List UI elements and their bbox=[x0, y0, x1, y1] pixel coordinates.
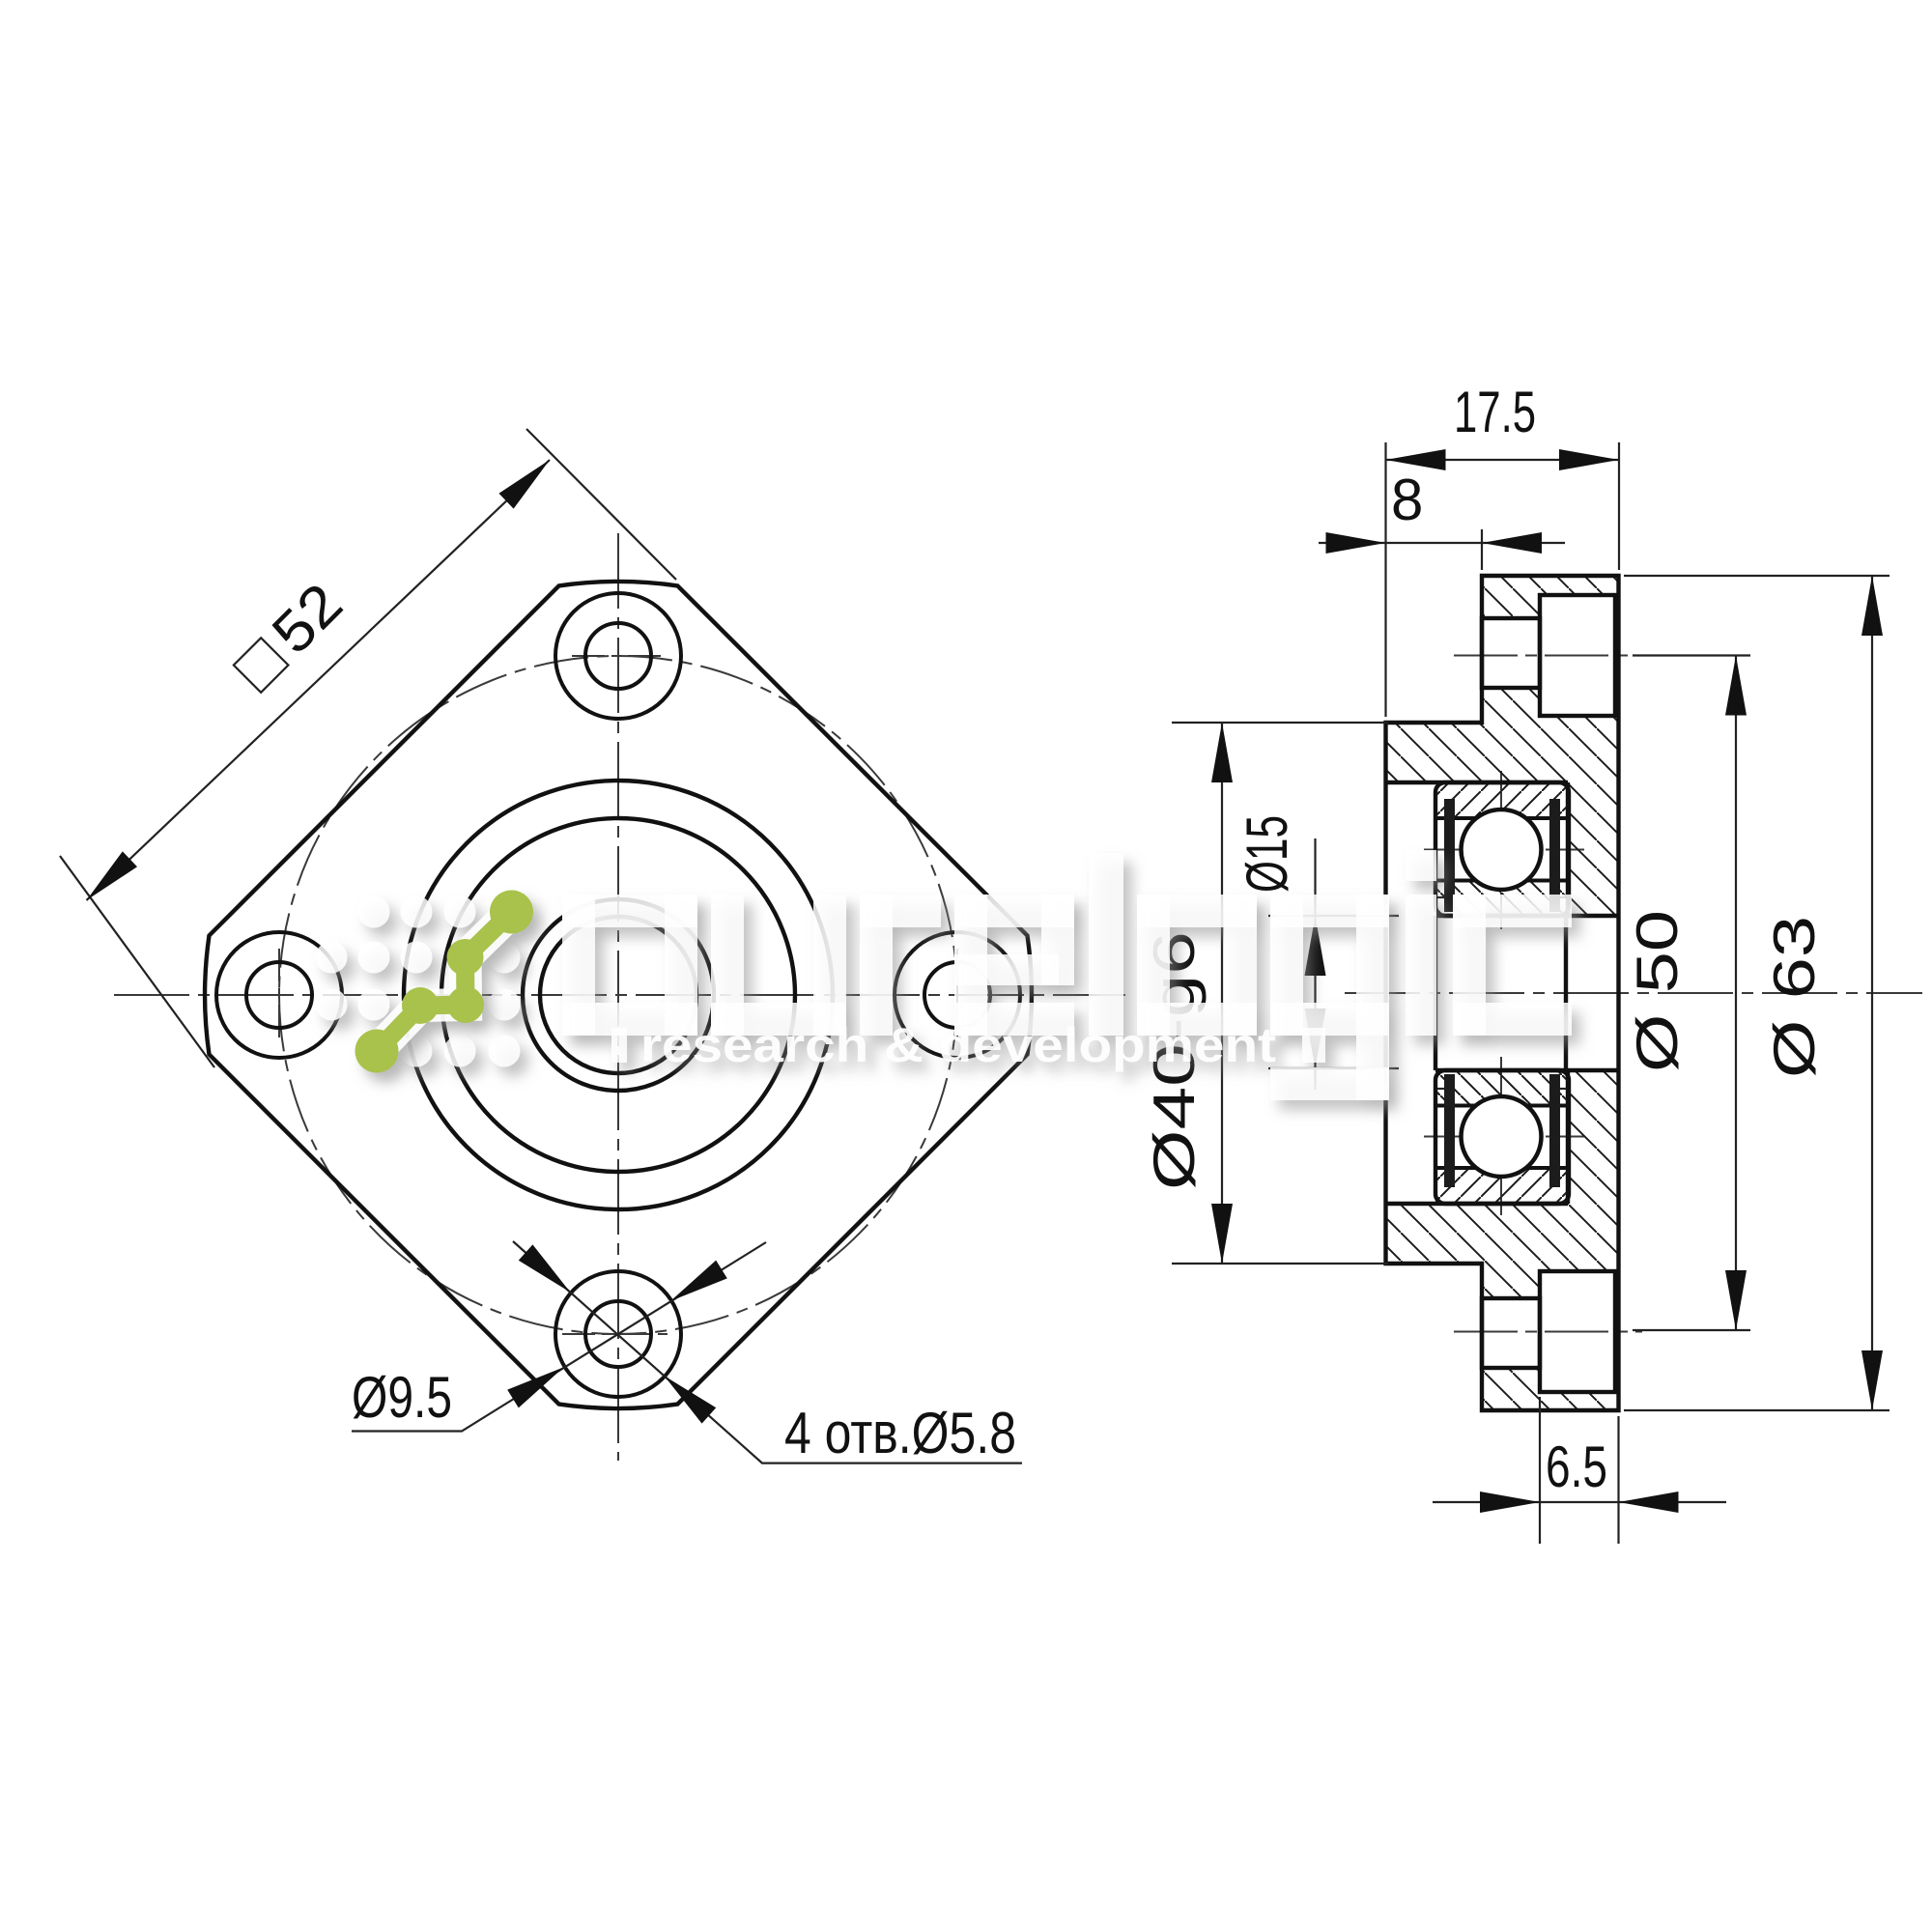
svg-text:6.5: 6.5 bbox=[1546, 1435, 1607, 1499]
svg-text:8: 8 bbox=[1391, 468, 1423, 532]
svg-text:research & development: research & development bbox=[640, 1018, 1276, 1072]
svg-text:Ø 63: Ø 63 bbox=[1762, 916, 1827, 1078]
svg-text:Ø 50: Ø 50 bbox=[1625, 910, 1690, 1072]
svg-text:4 отв.Ø5.8: 4 отв.Ø5.8 bbox=[784, 1401, 1016, 1465]
svg-text:Ø15: Ø15 bbox=[1235, 815, 1299, 893]
svg-text:Ø9.5: Ø9.5 bbox=[352, 1365, 452, 1430]
svg-text:17.5: 17.5 bbox=[1454, 380, 1536, 444]
